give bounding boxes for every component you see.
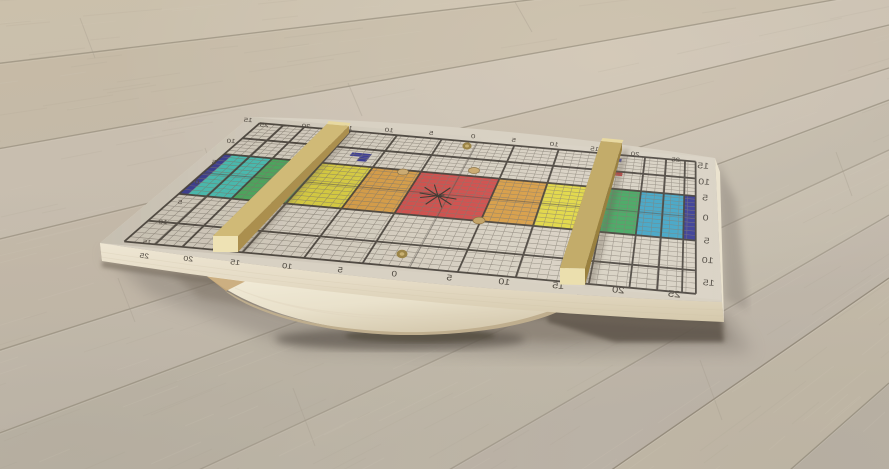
svg-text:15: 15 [229,258,240,267]
svg-text:5: 5 [337,265,343,274]
svg-text:25: 25 [139,251,149,260]
svg-text:10: 10 [281,261,292,271]
svg-text:20: 20 [182,254,193,263]
svg-text:0: 0 [391,269,397,278]
